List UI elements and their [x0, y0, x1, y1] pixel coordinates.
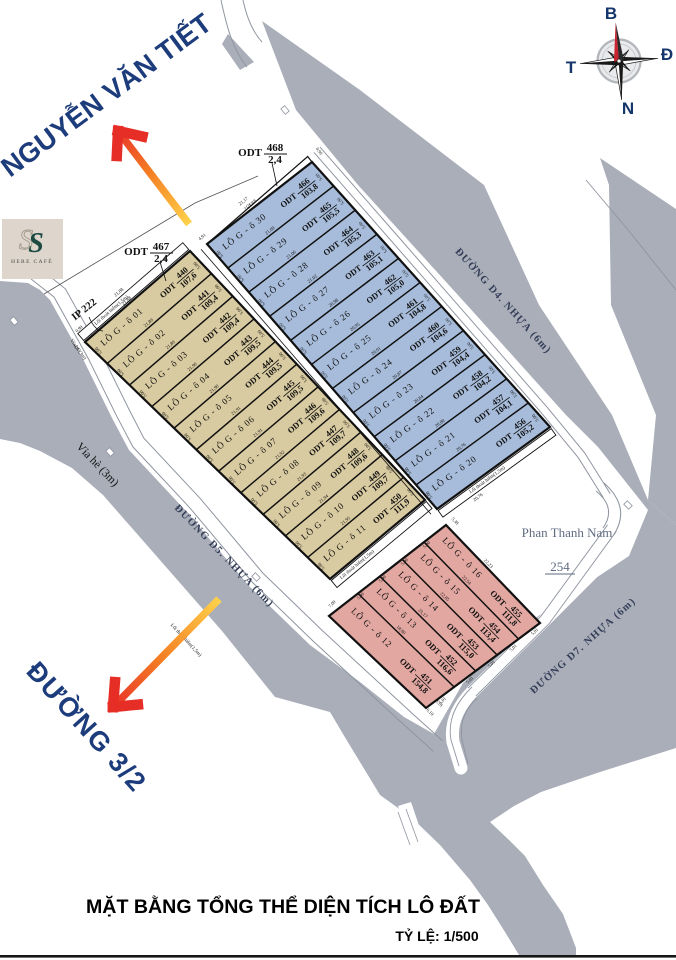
svg-text:2,4: 2,4: [268, 154, 282, 166]
svg-text:4,91: 4,91: [197, 232, 208, 242]
svg-text:5,38: 5,38: [450, 516, 460, 526]
svg-text:254: 254: [550, 559, 570, 574]
svg-text:467: 467: [153, 241, 170, 253]
svg-text:S: S: [28, 228, 44, 259]
svg-text:T: T: [566, 58, 577, 77]
svg-text:ĐƯỜNG 3/2: ĐƯỜNG 3/2: [21, 655, 154, 798]
svg-text:NGUYỄN VĂN TIẾT: NGUYỄN VĂN TIẾT: [0, 7, 217, 183]
svg-text:6,10: 6,10: [425, 707, 435, 717]
svg-text:TỶ LỆ: 1/500: TỶ LỆ: 1/500: [395, 927, 478, 944]
svg-text:468: 468: [267, 142, 284, 154]
svg-text:ODT: ODT: [124, 246, 149, 258]
svg-text:Đ: Đ: [661, 45, 673, 64]
svg-text:MẶT BẰNG TỔNG THỂ DIỆN TÍCH LÔ: MẶT BẰNG TỔNG THỂ DIỆN TÍCH LÔ ĐẤT: [86, 894, 480, 918]
svg-text:ODT: ODT: [238, 147, 263, 159]
svg-text:7,09: 7,09: [327, 599, 337, 609]
svg-text:Phan Thanh Nam: Phan Thanh Nam: [522, 525, 613, 540]
svg-text:N: N: [622, 99, 634, 118]
svg-text:2,4: 2,4: [154, 253, 168, 265]
svg-text:HERE CAFÉ: HERE CAFÉ: [11, 257, 53, 265]
svg-text:B: B: [605, 4, 617, 23]
svg-text:0,99: 0,99: [314, 146, 324, 157]
